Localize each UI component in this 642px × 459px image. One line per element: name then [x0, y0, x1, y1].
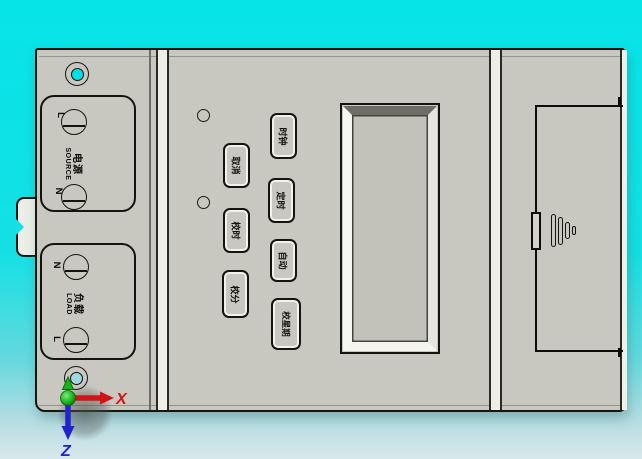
battery-cover-latch — [531, 212, 541, 250]
terminal-block-source: L 电源 SOURCE N — [40, 95, 136, 212]
button-set-minute: 校分 — [222, 270, 249, 318]
lcd-display-bezel — [343, 106, 437, 351]
button-auto: 自动 — [270, 239, 297, 282]
left-seam-groove — [156, 50, 169, 410]
reset-hole-circle — [197, 196, 210, 209]
x-axis-label: X — [115, 391, 128, 408]
button-set-hour: 校时 — [223, 208, 250, 253]
button-timer-label: 定时 — [275, 191, 288, 209]
button-auto-label: 自动 — [277, 251, 290, 269]
button-clock-label: 时钟 — [277, 127, 290, 145]
battery-cover-notch-bottom — [618, 348, 621, 357]
source-terminal-n-screw — [61, 184, 87, 210]
lcd-display-window — [340, 103, 440, 354]
load-terminal-n-label: N — [51, 259, 63, 271]
origin-sphere — [61, 391, 76, 406]
load-label-cn: 负载 — [73, 293, 84, 315]
top-bevel-line — [39, 56, 621, 57]
load-terminal-text: 负载 LOAD — [63, 274, 85, 334]
mounting-hole-top-through — [71, 68, 84, 81]
mounting-hole-top — [65, 62, 89, 86]
axis-triad: X Z — [28, 352, 132, 459]
button-clock: 时钟 — [270, 113, 297, 159]
battery-cover — [535, 105, 623, 352]
button-timer: 定时 — [268, 178, 295, 223]
vent-slot — [551, 214, 556, 247]
battery-cover-notch-top — [618, 97, 621, 106]
vent-slot — [558, 217, 563, 245]
vent-slot — [572, 226, 576, 235]
left-seam-shadow — [149, 50, 151, 410]
vent-slot — [565, 222, 570, 239]
button-set-minute-label: 校分 — [229, 285, 242, 303]
screw-slot — [65, 270, 87, 272]
source-label-en: SOURCE — [64, 148, 72, 181]
button-set-week-label: 校星期 — [280, 311, 292, 337]
button-set-week: 校星期 — [271, 298, 301, 350]
load-label-en: LOAD — [65, 293, 73, 315]
button-set-hour-label: 校时 — [230, 221, 243, 239]
button-cancel-label: 取消 — [230, 156, 243, 174]
load-terminal-l-label: L — [51, 333, 63, 345]
screw-slot — [65, 343, 87, 345]
right-seam-groove — [489, 50, 502, 410]
button-cancel: 取消 — [223, 143, 250, 188]
load-terminal-l-screw — [63, 327, 89, 353]
source-terminal-l-screw — [61, 109, 87, 135]
source-label-cn: 电源 — [72, 153, 83, 175]
y-axis-cone — [63, 377, 74, 390]
screw-slot — [63, 125, 85, 127]
indicator-led-circle — [197, 109, 210, 122]
din-clip-notch — [16, 219, 24, 235]
z-axis-label: Z — [60, 443, 72, 459]
cad-viewport[interactable]: L 电源 SOURCE N N 负载 LOAD L — [0, 0, 642, 459]
screw-slot — [63, 200, 85, 202]
terminal-block-load: N 负载 LOAD L — [40, 243, 136, 360]
